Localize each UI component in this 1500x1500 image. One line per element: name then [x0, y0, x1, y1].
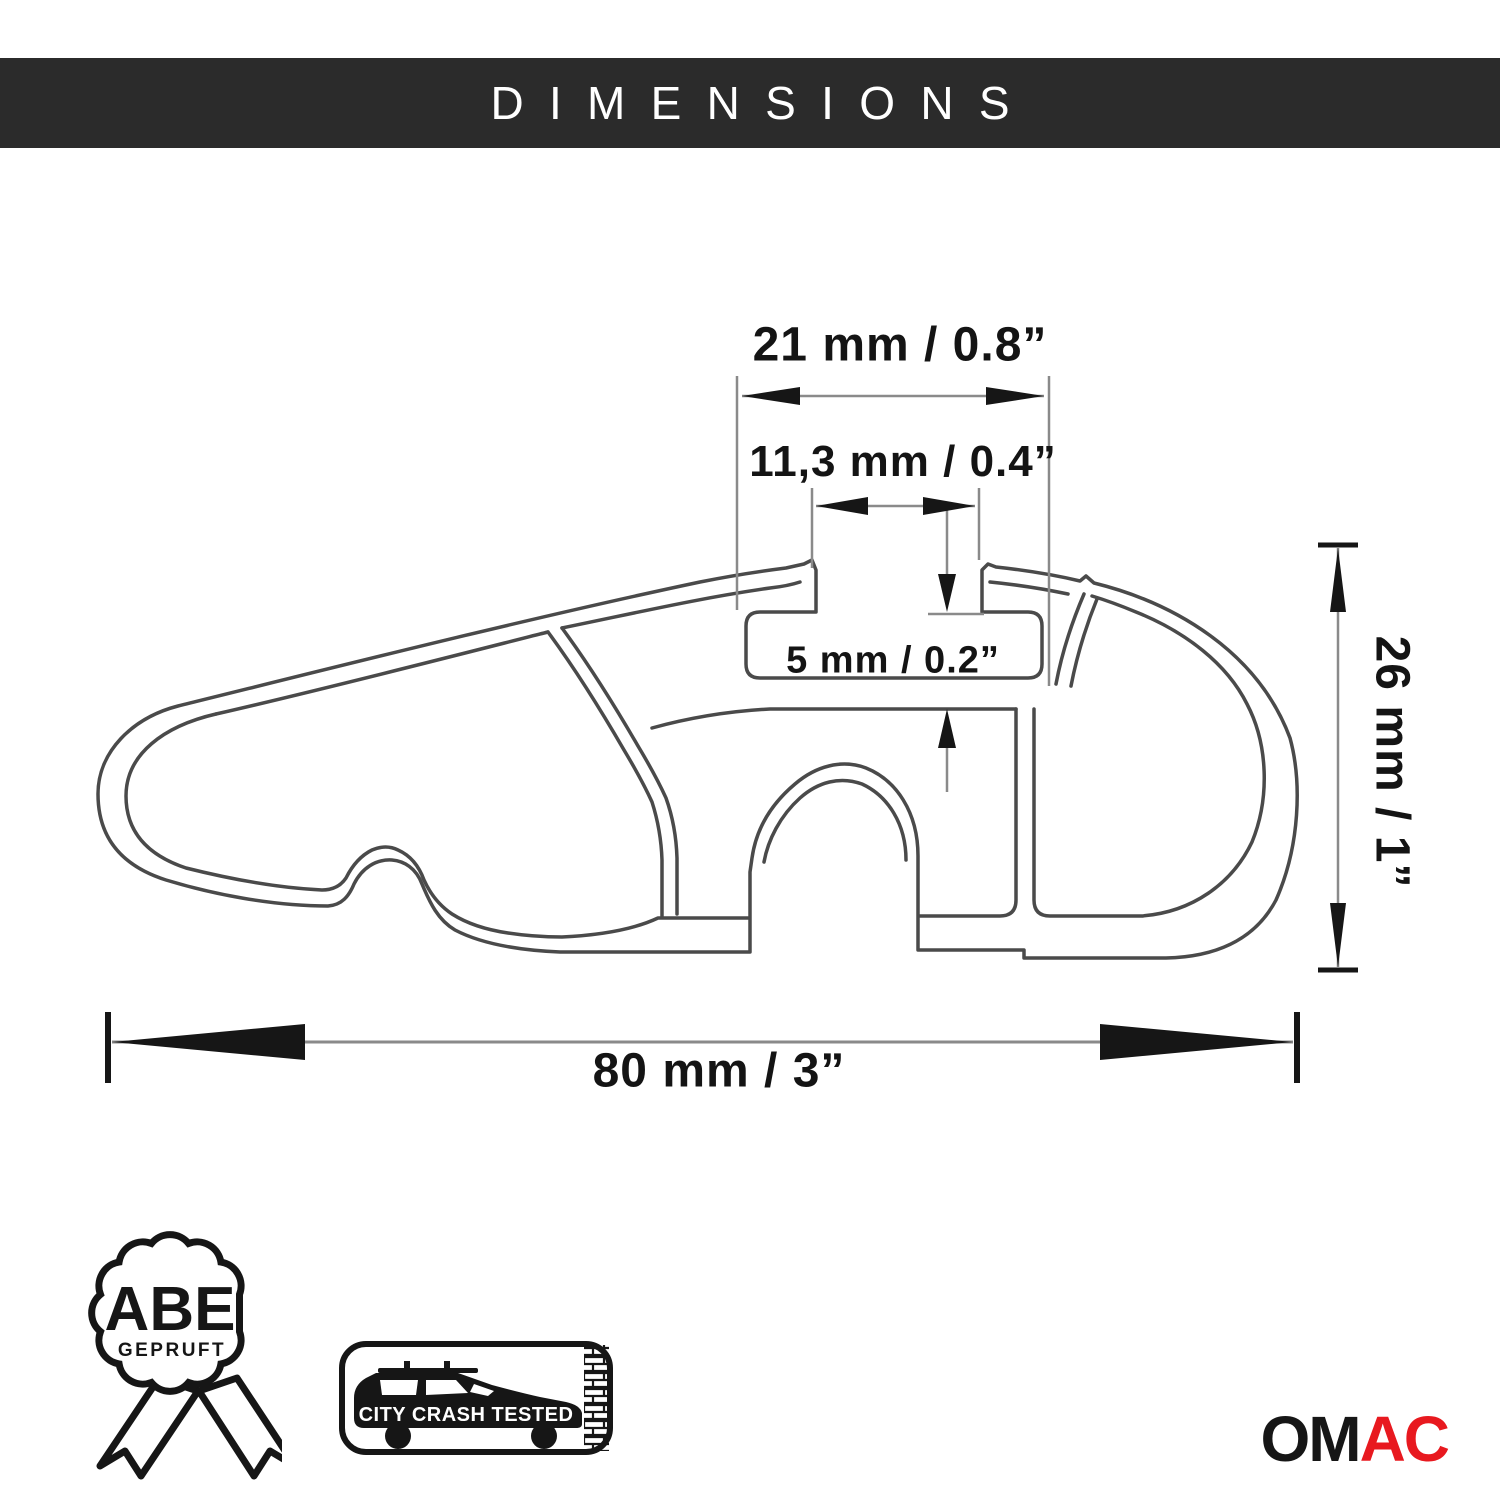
dim-label-profile-height: 26 mm / 1” [1365, 636, 1420, 889]
arrowhead-5-down [938, 574, 956, 612]
profile-inner-skin-path [126, 714, 748, 937]
right-lip-underside [990, 582, 1068, 594]
dim-label-slot-outer-width: 21 mm / 0.8” [753, 318, 1048, 373]
omac-logo-black-part: OM [1260, 1403, 1359, 1475]
omac-logo: OMAC [1260, 1402, 1448, 1476]
crossbar-profile-outline [98, 560, 1297, 958]
internal-wall-center-a [920, 709, 1016, 916]
car-crossbar-stub-1 [404, 1361, 410, 1369]
abe-certification-badge: ABE GEPRUFT [62, 1208, 282, 1488]
arrowhead-5-up [938, 709, 956, 748]
dim-label-floor-thickness: 5 mm / 0.2” [786, 640, 1000, 683]
internal-wall-right-a [1056, 594, 1084, 684]
abe-subtitle: GEPRUFT [118, 1340, 226, 1361]
page: DIMENSIONS [0, 0, 1500, 1500]
arrowhead-21-left [742, 387, 800, 405]
arrowhead-80-right [1100, 1024, 1293, 1060]
extension-lines [112, 376, 1338, 1042]
car-rear-window [380, 1380, 418, 1395]
internal-wall-center-b [1034, 596, 1264, 916]
arrowhead-21-right [986, 387, 1044, 405]
arrowhead-113-right [923, 497, 975, 515]
abe-ribbons [100, 1378, 282, 1476]
dim-label-slot-opening-width: 11,3 mm / 0.4” [749, 437, 1057, 487]
arrowhead-80-left [112, 1024, 305, 1060]
omac-logo-red-part: AC [1360, 1403, 1448, 1475]
abe-title: ABE [105, 1275, 236, 1344]
abe-ribbon-left [100, 1378, 198, 1476]
internal-wall-left-b [562, 628, 677, 914]
arrowhead-26-down [1330, 903, 1346, 967]
arrowhead-26-up [1330, 548, 1346, 612]
profile-inner-top-path [216, 632, 548, 714]
car-roof-rail [378, 1368, 478, 1373]
city-crash-tested-badge: CITY CRASH TESTED [338, 1340, 614, 1456]
arrowhead-113-left [816, 497, 868, 515]
profile-outer-path [98, 560, 1297, 958]
slot-floor-underside [652, 709, 1016, 728]
crash-badge-label: CITY CRASH TESTED [359, 1404, 574, 1426]
dimension-ticks [108, 545, 1358, 1083]
brick-wall-icon [584, 1345, 609, 1451]
internal-wall-left-a [548, 632, 662, 916]
car-crossbar-stub-2 [444, 1361, 450, 1369]
abe-ribbon-right [199, 1378, 282, 1476]
dim-label-profile-width: 80 mm / 3” [593, 1044, 846, 1099]
